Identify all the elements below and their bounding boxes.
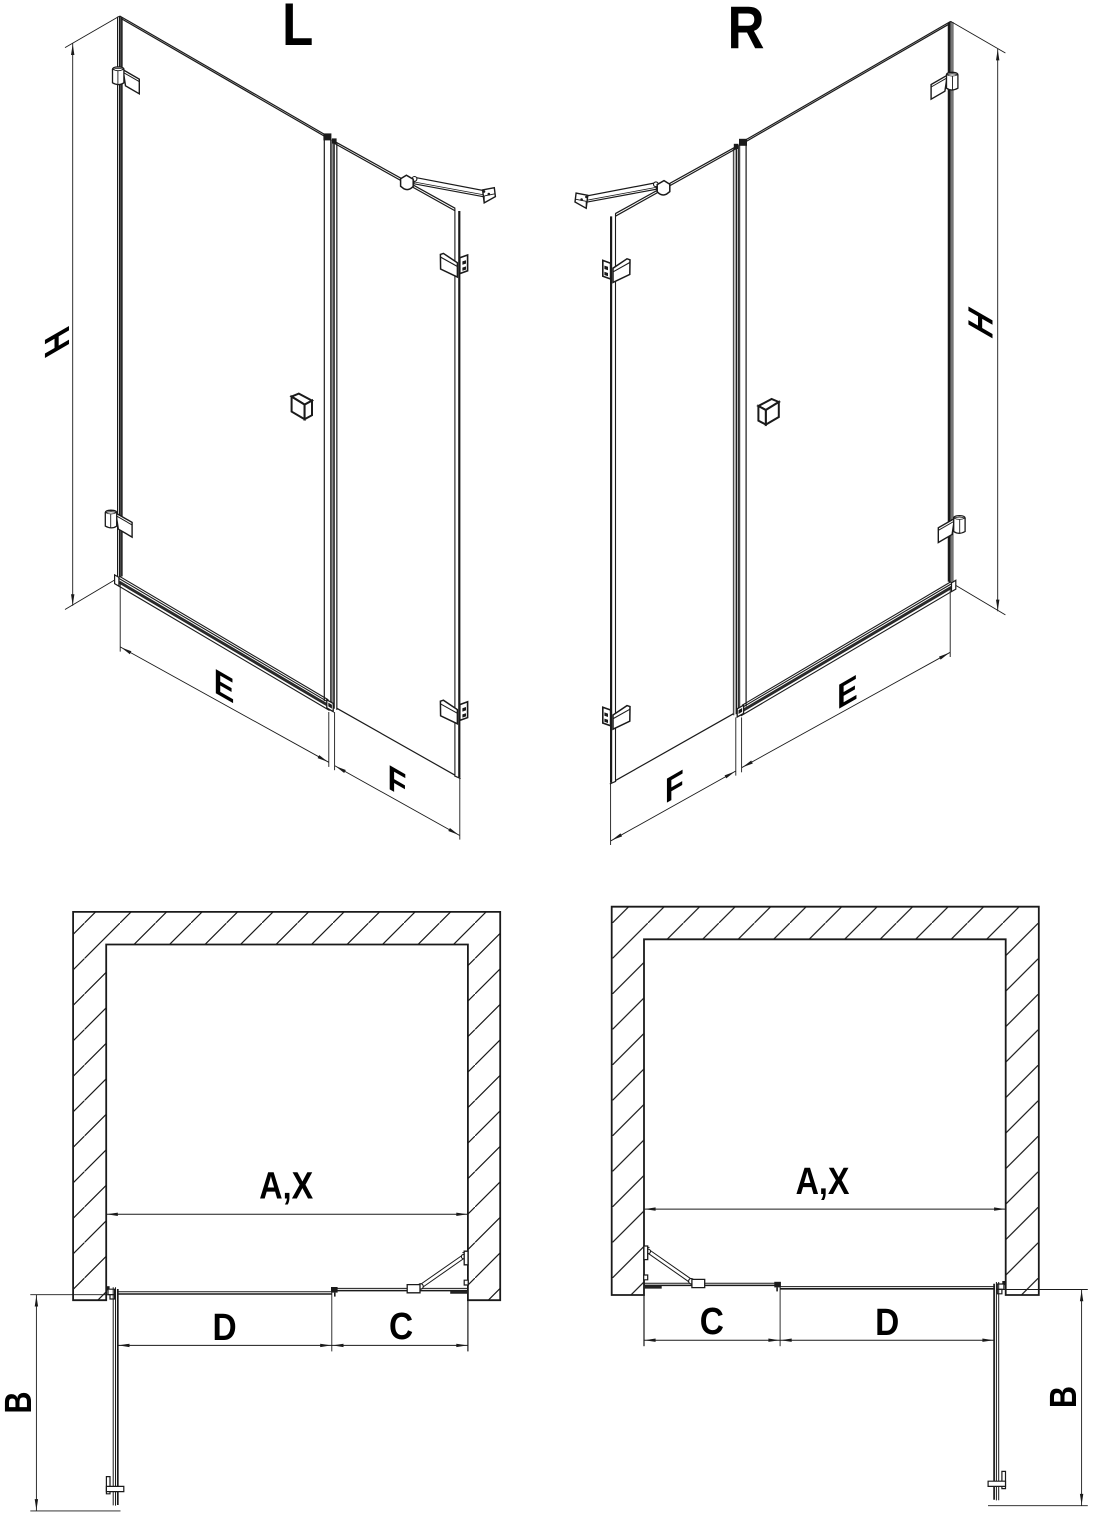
- svg-text:F: F: [665, 762, 684, 812]
- svg-text:D: D: [213, 1306, 237, 1348]
- svg-text:D: D: [875, 1301, 899, 1343]
- svg-text:A,X: A,X: [796, 1161, 850, 1203]
- svg-text:F: F: [388, 757, 407, 807]
- svg-text:R: R: [728, 0, 765, 61]
- svg-text:A,X: A,X: [259, 1165, 313, 1207]
- svg-text:H: H: [37, 319, 77, 364]
- svg-text:C: C: [700, 1300, 724, 1342]
- svg-text:B: B: [1043, 1386, 1085, 1408]
- svg-text:H: H: [961, 300, 1001, 345]
- svg-text:E: E: [837, 667, 858, 718]
- svg-text:L: L: [282, 0, 313, 58]
- svg-text:C: C: [389, 1305, 413, 1347]
- svg-text:E: E: [214, 661, 235, 712]
- svg-text:B: B: [0, 1392, 40, 1414]
